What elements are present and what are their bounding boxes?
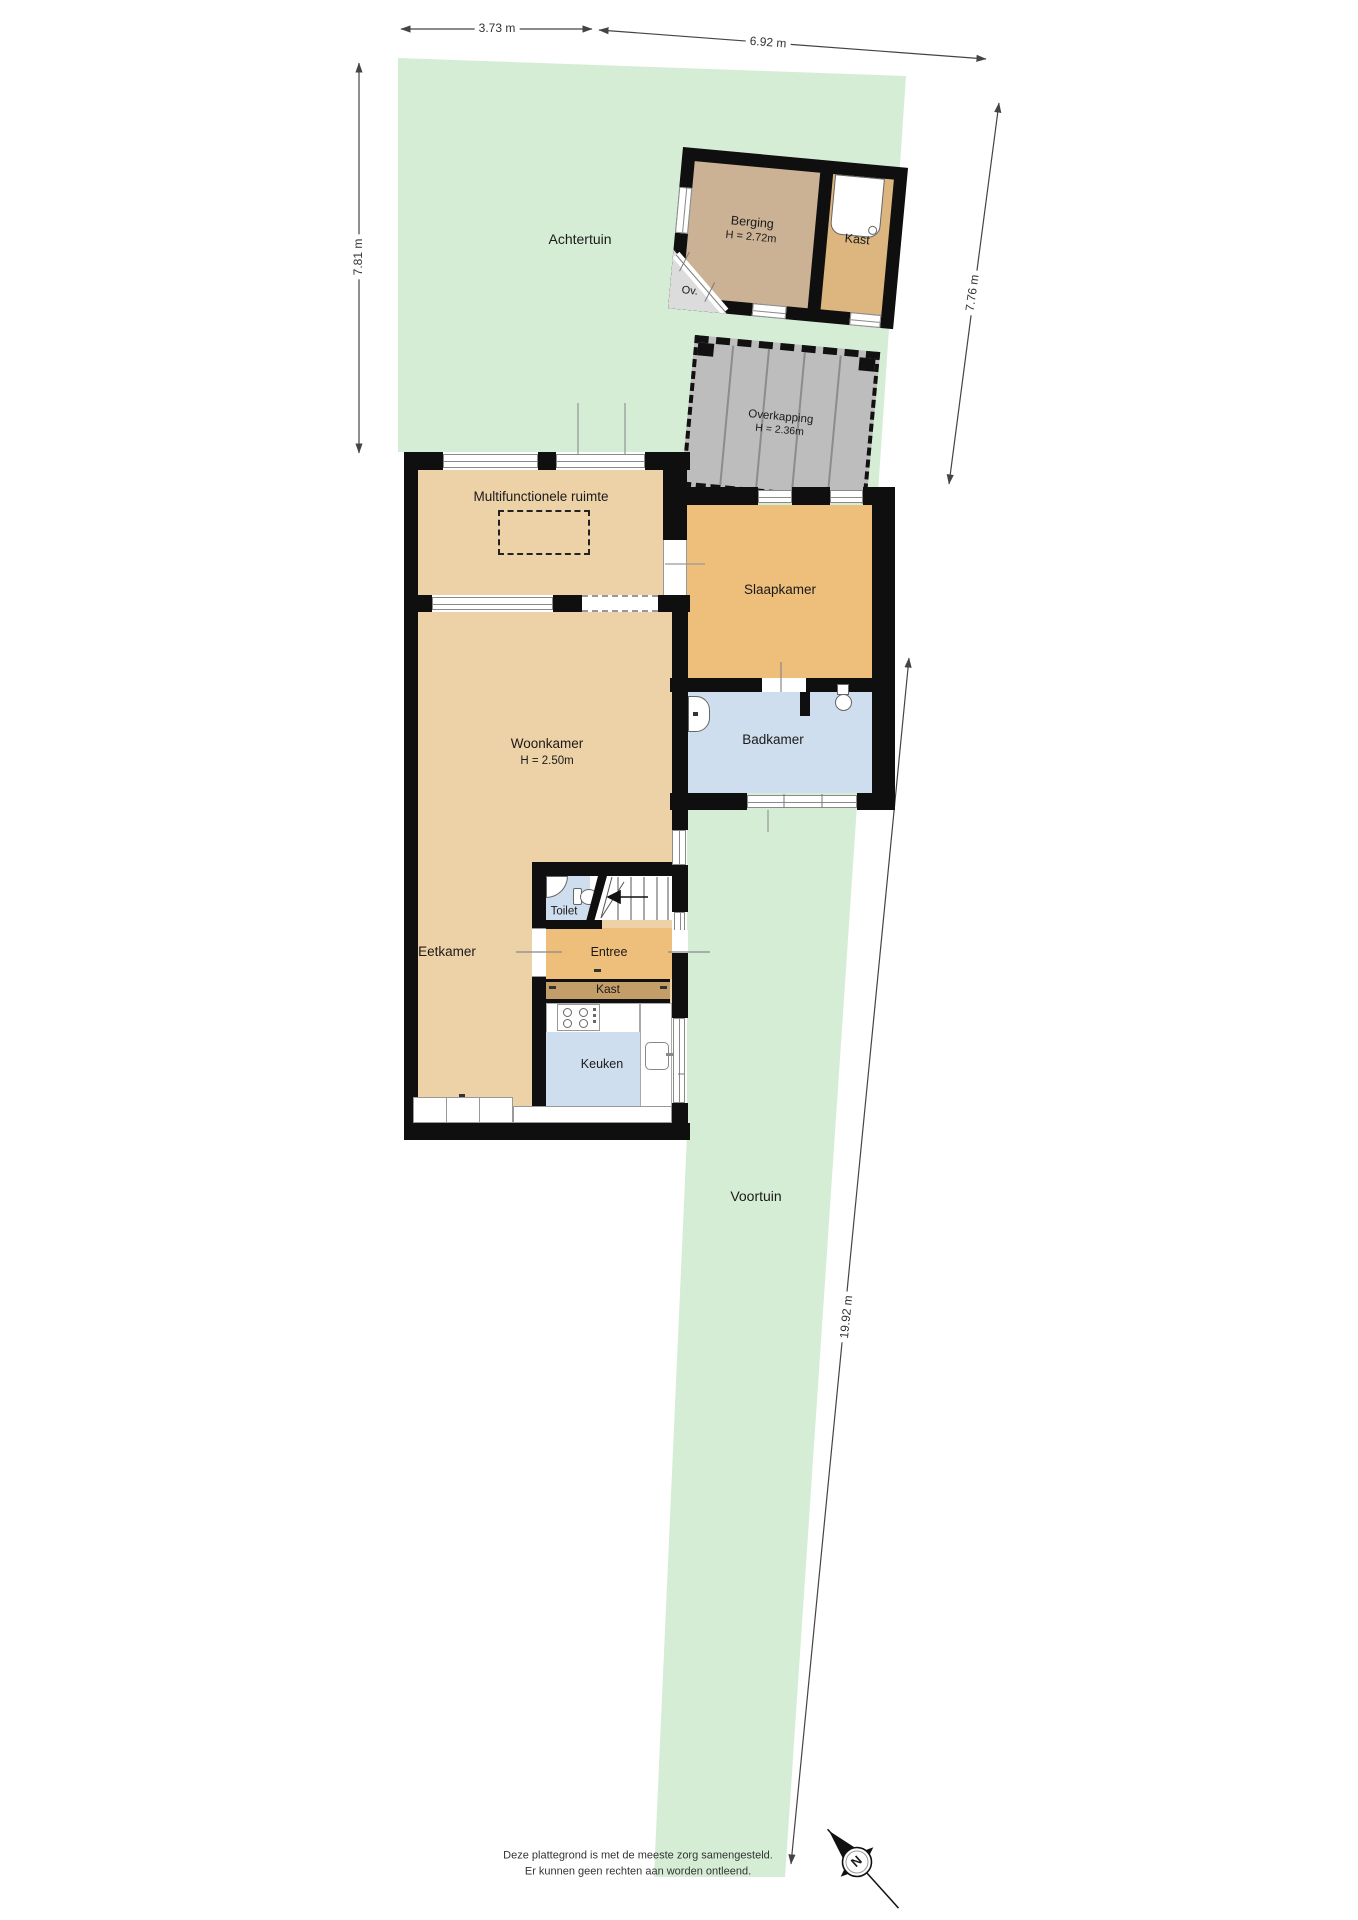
wall: [670, 487, 758, 505]
bathtub: [688, 696, 710, 732]
wall: [672, 1103, 688, 1140]
kitchen-window: [673, 1018, 685, 1103]
burner: [563, 1008, 572, 1017]
cabinet: [479, 1097, 513, 1123]
window-top-2: [556, 454, 645, 468]
wall: [404, 452, 418, 1140]
dining-room-label: Eetkamer: [418, 944, 476, 960]
cabinet: [446, 1097, 480, 1123]
window-mid: [432, 597, 553, 610]
opening-dining-entry: [532, 928, 546, 977]
bedroom-label: Slaapkamer: [744, 582, 816, 598]
ov-label: Ov.: [681, 284, 698, 298]
footer-disclaimer-line1: Deze plattegrond is met de meeste zorg s…: [503, 1850, 773, 1863]
wall: [672, 865, 688, 912]
wall: [658, 595, 690, 612]
toilet-label: Toilet: [551, 905, 578, 918]
window-top-1: [443, 454, 538, 468]
wall: [532, 862, 672, 876]
door-mark: [549, 986, 556, 989]
wall: [792, 487, 830, 505]
berging-name: Berging: [730, 213, 774, 231]
cabinet: [413, 1097, 447, 1123]
burner: [579, 1019, 588, 1028]
wall: [670, 793, 747, 810]
bedroom-window-1: [758, 490, 792, 503]
opening-mfr-living: [582, 595, 658, 612]
stove-knob: [593, 1014, 596, 1017]
living-room-height: H = 2.50m: [520, 755, 573, 767]
cabinet-mark: [459, 1094, 465, 1097]
front-door-opening: [672, 930, 688, 953]
wall: [670, 678, 762, 692]
berging-label: Berging H = 2.72m: [725, 213, 779, 247]
floorplan-canvas: Ov. Berging H = 2.72m Kast Overkapping H…: [0, 0, 1358, 1920]
opening-mfr-bedroom: [663, 540, 687, 595]
canopy-post-left: [697, 342, 714, 356]
canopy-label: Overkapping H = 2.36m: [746, 408, 813, 440]
burner: [563, 1019, 572, 1028]
living-room-label: Woonkamer H = 2.50m: [511, 736, 584, 768]
opening-bedroom-bathroom: [762, 678, 806, 692]
door-mark: [660, 986, 667, 989]
entry-label: Entree: [591, 945, 628, 959]
closet-label: Kast: [596, 983, 620, 997]
bathroom-toilet-bowl: [835, 694, 852, 711]
dim-left: 7.81 m: [352, 235, 366, 280]
wall: [404, 595, 432, 612]
canopy-post-right: [858, 357, 875, 371]
outbuilding-kast-label: Kast: [844, 231, 870, 248]
wall: [857, 793, 895, 810]
void-dashed-rect: [498, 510, 590, 555]
stairs-floor: [590, 876, 672, 920]
back-garden-label: Achtertuin: [548, 231, 611, 247]
multifunctional-room-label: Multifunctionele ruimte: [473, 489, 608, 505]
cabinet-strip: [513, 1106, 672, 1123]
dim-top-left: 3.73 m: [475, 22, 520, 36]
bedroom-window-2: [830, 490, 863, 503]
toilet-bowl: [580, 889, 598, 905]
wall: [404, 452, 443, 470]
wall: [872, 487, 895, 810]
wall: [672, 953, 688, 1018]
bath-tap: [693, 712, 698, 716]
wall: [545, 999, 670, 1003]
kast-window-bottom: [849, 312, 881, 328]
burner: [579, 1008, 588, 1017]
door-mark: [594, 969, 601, 972]
wall: [404, 1123, 690, 1140]
stove-knob: [593, 1008, 596, 1011]
bathroom-window: [747, 795, 857, 808]
outbuilding-berging: Ov. Berging H = 2.72m Kast: [668, 147, 908, 329]
bathroom-label: Badkamer: [742, 732, 804, 748]
entry-sidelight: [674, 912, 685, 932]
wall: [532, 977, 546, 1123]
living-room-name: Woonkamer: [511, 736, 584, 751]
footer-disclaimer-line2: Er kunnen geen rechten aan worden ontlee…: [525, 1866, 751, 1879]
canopy-overkapping: Overkapping H = 2.36m: [681, 335, 880, 504]
compass-rose: [811, 1815, 915, 1920]
wall: [553, 595, 582, 612]
living-side-window: [672, 830, 686, 865]
kitchen-label: Keuken: [581, 1057, 623, 1071]
front-garden-label: Voortuin: [730, 1188, 781, 1204]
canopy-beam: [719, 345, 734, 485]
ov-corner-graphics: [668, 147, 908, 329]
sink-tap: [666, 1053, 673, 1056]
wall: [538, 452, 556, 470]
kitchen-sink: [645, 1042, 669, 1070]
canopy-beam: [827, 355, 842, 495]
stove-knob: [593, 1020, 596, 1023]
